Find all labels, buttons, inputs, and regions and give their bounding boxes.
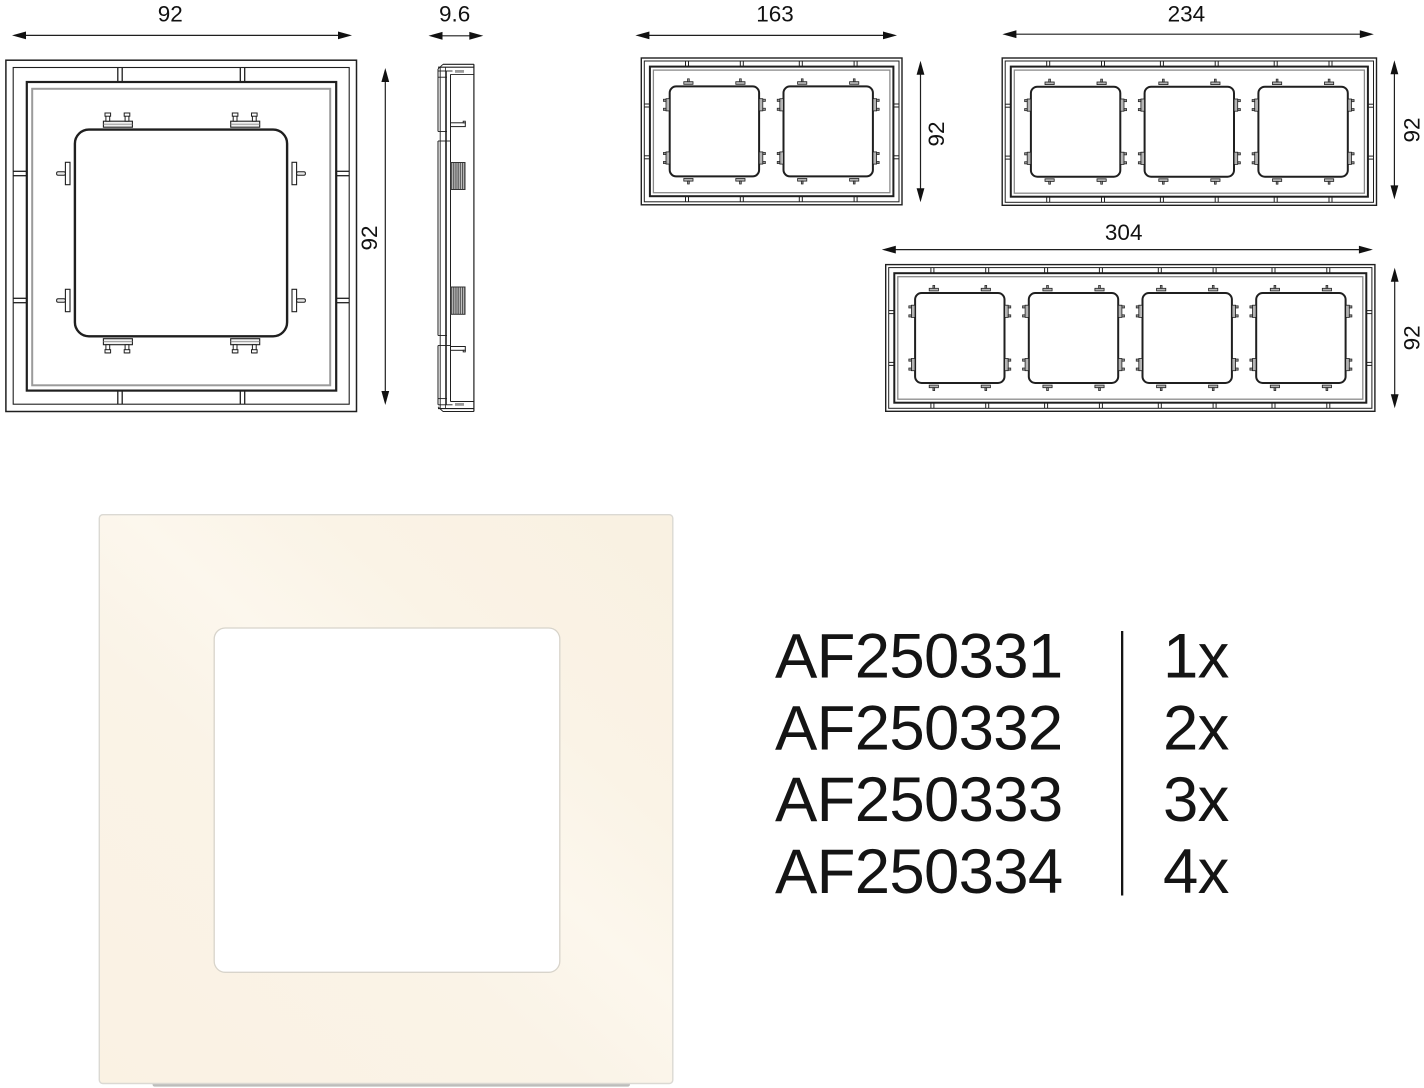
svg-text:2x: 2x: [1163, 693, 1230, 763]
svg-text:1x: 1x: [1163, 622, 1230, 692]
svg-text:AF250334: AF250334: [775, 837, 1062, 907]
svg-text:304: 304: [1105, 220, 1143, 245]
svg-text:92: 92: [158, 2, 183, 27]
svg-text:92: 92: [1399, 117, 1424, 142]
svg-text:4x: 4x: [1163, 837, 1230, 907]
svg-text:163: 163: [756, 2, 794, 27]
svg-text:AF250331: AF250331: [775, 622, 1062, 692]
svg-text:92: 92: [1399, 325, 1424, 350]
svg-text:92: 92: [357, 225, 382, 250]
svg-text:9.6: 9.6: [439, 2, 470, 27]
svg-text:AF250332: AF250332: [775, 693, 1062, 763]
svg-text:AF250333: AF250333: [775, 765, 1062, 835]
svg-text:92: 92: [924, 121, 949, 146]
svg-text:3x: 3x: [1163, 765, 1230, 835]
svg-text:234: 234: [1168, 2, 1206, 27]
